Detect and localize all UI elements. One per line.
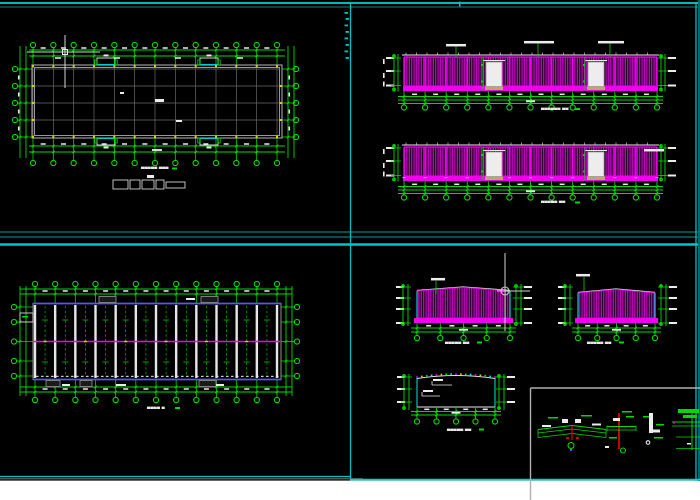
elevation-1 (383, 41, 676, 110)
roof-plan-sheet (11, 281, 299, 402)
sheet-title-gable-b: ▄▄▄▄▄ ▄▄ (587, 340, 611, 344)
elevation-2 (383, 143, 676, 201)
plan-crosshair-cursor (27, 35, 100, 88)
sheet-title-section: ▄▄▄▄▄ ▄▄ (447, 427, 471, 431)
sheet-title-gable-a: ▄▄▄▄▄ ▄▄ (445, 340, 469, 344)
sheet-title-elevation-1: ▄▄▄▄▄▄ ▄▄ (541, 106, 569, 110)
gable-elevation-1 (396, 278, 532, 341)
sheet-title-elevation-2: ▄▄▄▄▄ ▄▄ (541, 199, 565, 203)
section-view (397, 373, 515, 424)
gable-elevation-2 (558, 274, 677, 341)
cad-canvas[interactable]: ▄▄▄▄▄ ▄▄▄ ▄▄▄▄▄▄ ▄▄ ▄▄▄▄▄ ▄▄ ▄▄▄▄ ▄ ▄▄▄▄… (0, 0, 700, 500)
sheet-title-roof-plan: ▄▄▄▄ ▄ (147, 405, 165, 409)
drawing-layer (0, 0, 700, 500)
sheet-title-floor-plan: ▄▄▄▄▄ ▄▄▄ (141, 165, 169, 169)
